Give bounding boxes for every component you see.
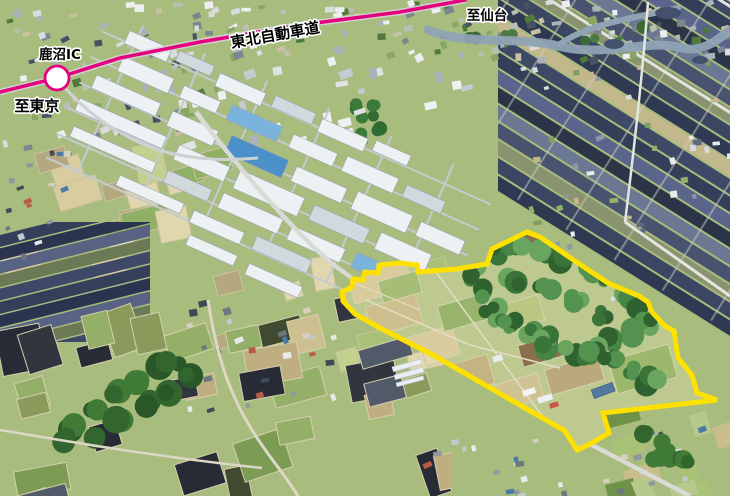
to-tokyo-label: 至東京 xyxy=(14,97,59,115)
pond xyxy=(692,56,708,64)
pond xyxy=(604,39,624,49)
ic-circle-marker xyxy=(45,66,69,90)
aerial-photo: 鹿沼IC 至東京 東北自動車道 至仙台 xyxy=(0,0,730,496)
pond xyxy=(655,7,681,19)
aerial-map: 鹿沼IC 至東京 東北自動車道 至仙台 xyxy=(0,0,730,496)
interchange-label: 鹿沼IC xyxy=(38,46,81,63)
to-sendai-label: 至仙台 xyxy=(467,7,508,24)
